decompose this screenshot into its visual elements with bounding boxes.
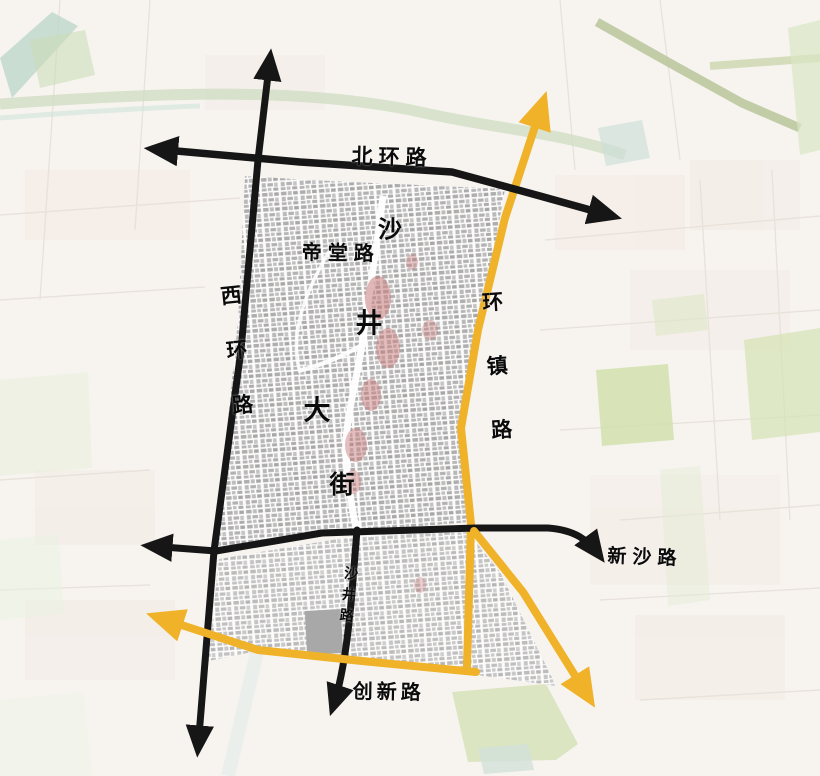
town-road-map: 北环路 帝堂路 西环路 环镇路 新沙路 沙井路 创新路 沙 井 大 街 [0,0,820,776]
road-label-shajing-dajie-char3: 大 [304,389,331,428]
road-label-xinshalu: 新沙路 [607,541,683,571]
road-label-beihuanlu: 北环路 [351,140,433,172]
road-label-shajing-dajie-char4: 街 [329,465,354,501]
map-graphic [0,0,820,776]
road-label-shajing-dajie-char2: 井 [356,302,383,341]
road-label-ditanglu: 帝堂路 [301,236,379,266]
green-patch-right [596,364,674,446]
road-label-shajing-dajie-char1: 沙 [378,210,402,245]
road-label-chuangxinlu: 创新路 [352,675,424,705]
